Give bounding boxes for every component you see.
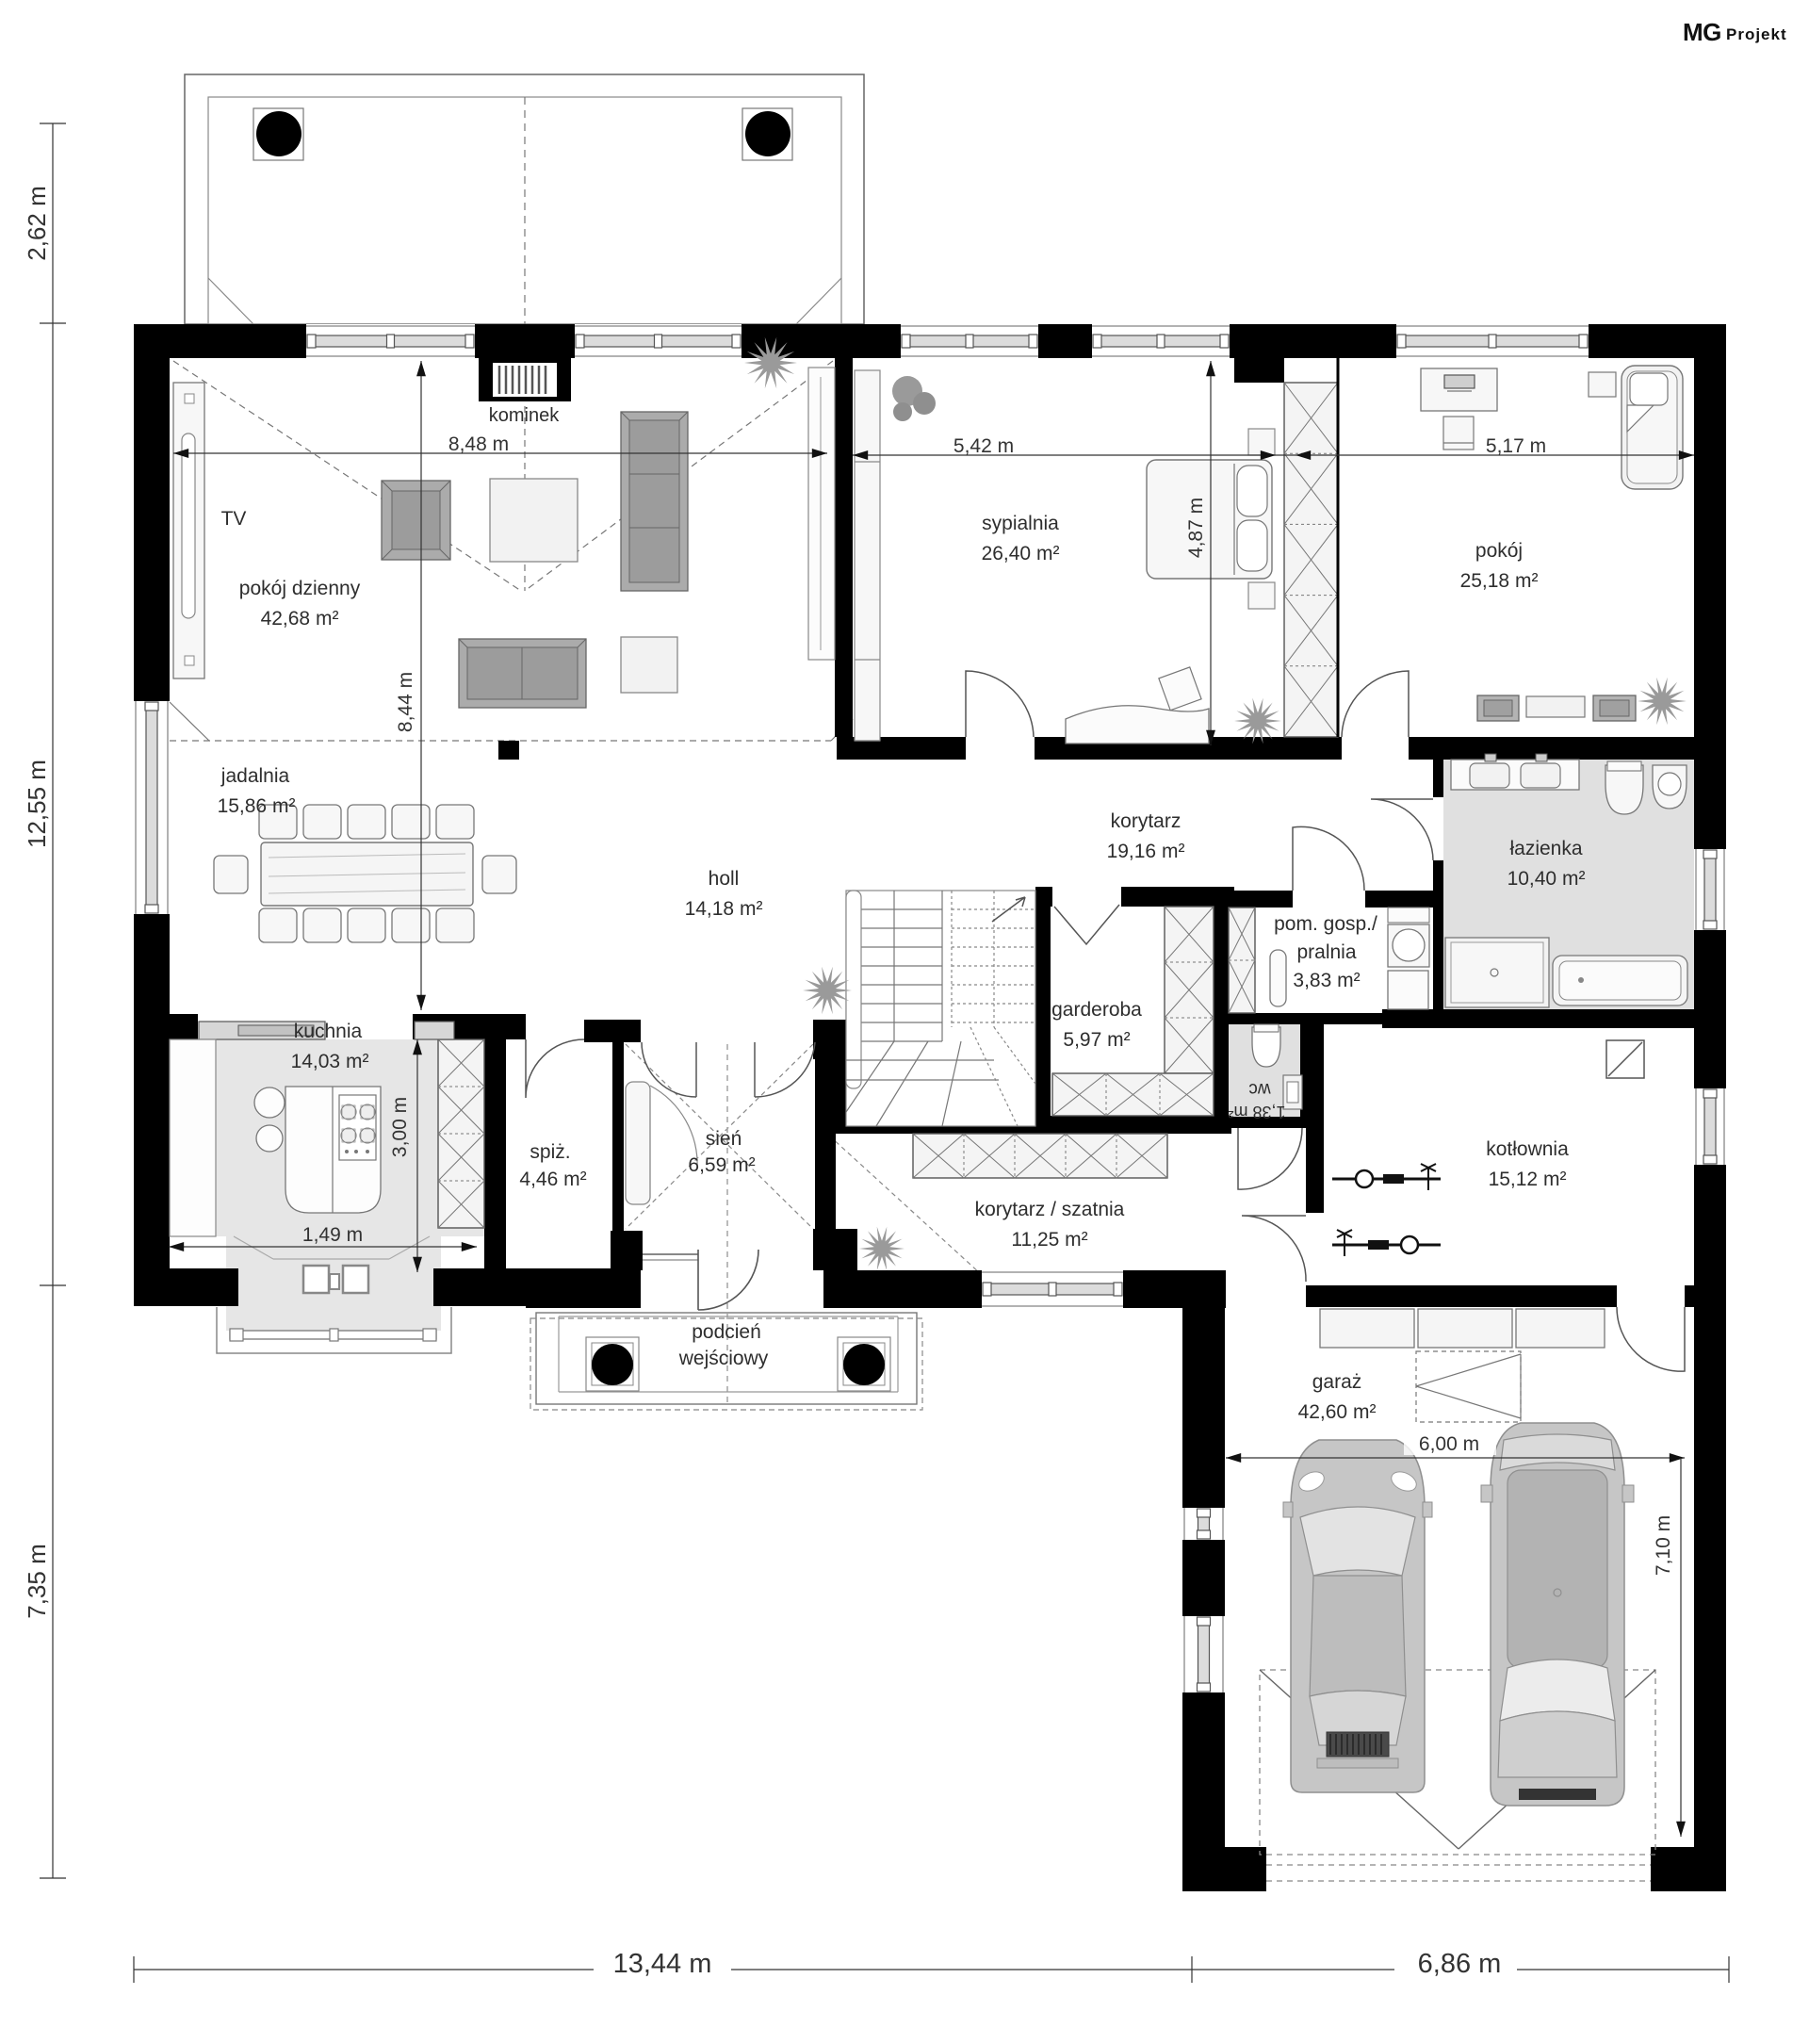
svg-text:14,18 m²: 14,18 m² (685, 898, 763, 920)
svg-text:sypialnia: sypialnia (982, 513, 1059, 534)
svg-text:6,00 m: 6,00 m (1419, 1433, 1479, 1455)
svg-text:TV: TV (221, 508, 247, 530)
svg-text:MG: MG (1683, 18, 1721, 46)
svg-text:6,59 m²: 6,59 m² (688, 1154, 755, 1176)
svg-text:19,16 m²: 19,16 m² (1107, 841, 1185, 862)
svg-text:korytarz / szatnia: korytarz / szatnia (975, 1199, 1125, 1220)
svg-text:8,48 m: 8,48 m (448, 433, 509, 455)
svg-text:8,44 m: 8,44 m (395, 672, 416, 732)
svg-text:2,62 m: 2,62 m (23, 186, 51, 261)
svg-text:pokój dzienny: pokój dzienny (239, 578, 361, 599)
svg-text:3,00 m: 3,00 m (389, 1097, 411, 1157)
svg-text:sień: sień (706, 1128, 742, 1150)
svg-text:42,68 m²: 42,68 m² (261, 608, 339, 630)
svg-text:5,97 m²: 5,97 m² (1063, 1029, 1130, 1051)
svg-text:kominek: kominek (489, 405, 560, 426)
svg-text:7,35 m: 7,35 m (23, 1544, 51, 1619)
svg-text:garderoba: garderoba (1051, 999, 1142, 1021)
svg-text:1,38 m²: 1,38 m² (1228, 1103, 1285, 1121)
svg-text:13,44 m: 13,44 m (613, 1949, 712, 1979)
svg-text:pom. gosp./: pom. gosp./ (1274, 913, 1377, 935)
svg-text:kotłownia: kotłownia (1486, 1138, 1569, 1160)
svg-text:łazienka: łazienka (1509, 838, 1582, 859)
svg-text:kuchnia: kuchnia (294, 1021, 363, 1042)
svg-text:11,25 m²: 11,25 m² (1011, 1229, 1087, 1251)
svg-text:25,18 m²: 25,18 m² (1460, 570, 1539, 592)
svg-text:holl: holl (709, 868, 740, 890)
svg-text:42,60 m²: 42,60 m² (1298, 1401, 1377, 1423)
svg-text:pokój: pokój (1475, 540, 1523, 562)
svg-text:garaż: garaż (1312, 1371, 1362, 1393)
svg-text:7,10 m: 7,10 m (1653, 1515, 1674, 1576)
svg-text:6,86 m: 6,86 m (1418, 1949, 1502, 1979)
svg-text:wejściowy: wejściowy (678, 1348, 769, 1369)
svg-text:podcień: podcień (692, 1321, 761, 1343)
svg-text:14,03 m²: 14,03 m² (291, 1051, 369, 1072)
svg-text:26,40 m²: 26,40 m² (982, 543, 1060, 564)
svg-text:4,46 m²: 4,46 m² (519, 1169, 586, 1190)
svg-text:12,55 m: 12,55 m (23, 760, 51, 848)
svg-text:korytarz: korytarz (1111, 810, 1182, 832)
svg-text:5,17 m: 5,17 m (1486, 435, 1546, 457)
svg-text:1,49 m: 1,49 m (302, 1224, 363, 1246)
svg-text:wc: wc (1248, 1079, 1271, 1099)
svg-text:10,40 m²: 10,40 m² (1507, 868, 1586, 890)
svg-text:3,83 m²: 3,83 m² (1293, 970, 1360, 991)
svg-text:4,87 m: 4,87 m (1185, 498, 1207, 558)
svg-text:5,42 m: 5,42 m (953, 435, 1014, 457)
svg-text:15,86 m²: 15,86 m² (218, 795, 296, 817)
svg-text:15,12 m²: 15,12 m² (1489, 1169, 1567, 1190)
svg-text:spiż.: spiż. (530, 1141, 570, 1163)
svg-text:jadalnia: jadalnia (220, 765, 290, 787)
svg-text:pralnia: pralnia (1296, 941, 1356, 963)
svg-text:Projekt: Projekt (1726, 25, 1787, 43)
